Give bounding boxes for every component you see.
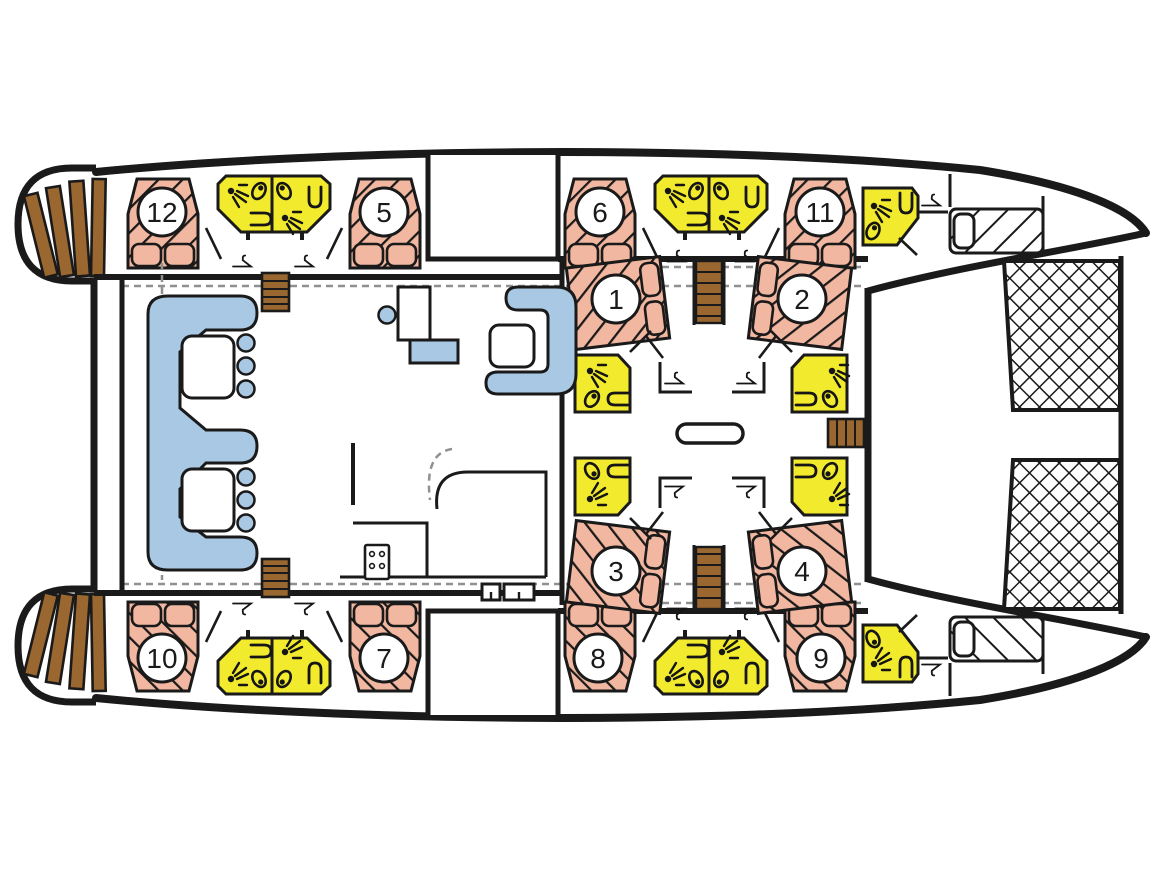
stool-seat <box>379 307 396 324</box>
cabin-3-label: 3 <box>608 556 624 587</box>
cabin-12-label: 12 <box>146 197 177 228</box>
cabin-9-label: 9 <box>813 643 829 674</box>
cabin-4-label: 4 <box>794 556 810 587</box>
deck-plan-drawing: 1 2 3 4 5 6 7 8 9 10 11 12 <box>0 0 1160 870</box>
corridor-bench <box>677 424 743 443</box>
deck-plan-page: 1 2 3 4 5 6 7 8 9 10 11 12 <box>0 0 1160 870</box>
cabin-1-label: 1 <box>608 284 624 315</box>
cabin-6-label: 6 <box>592 197 608 228</box>
galley-sink-counter <box>410 340 458 363</box>
salon-table <box>182 469 234 531</box>
cabin-10-label: 10 <box>146 643 177 674</box>
salon-table <box>182 336 234 398</box>
cabin-7-label: 7 <box>376 643 392 674</box>
cabin-5-label: 5 <box>376 197 392 228</box>
stairs <box>828 419 864 447</box>
cabin-corridor <box>677 419 864 447</box>
cabin-11-label: 11 <box>805 197 834 228</box>
galley <box>340 287 576 600</box>
cabin-2-label: 2 <box>794 284 810 315</box>
galley-stove <box>365 545 389 579</box>
salon <box>148 296 257 570</box>
settee-table <box>490 325 534 367</box>
cabin-8-label: 8 <box>590 643 606 674</box>
